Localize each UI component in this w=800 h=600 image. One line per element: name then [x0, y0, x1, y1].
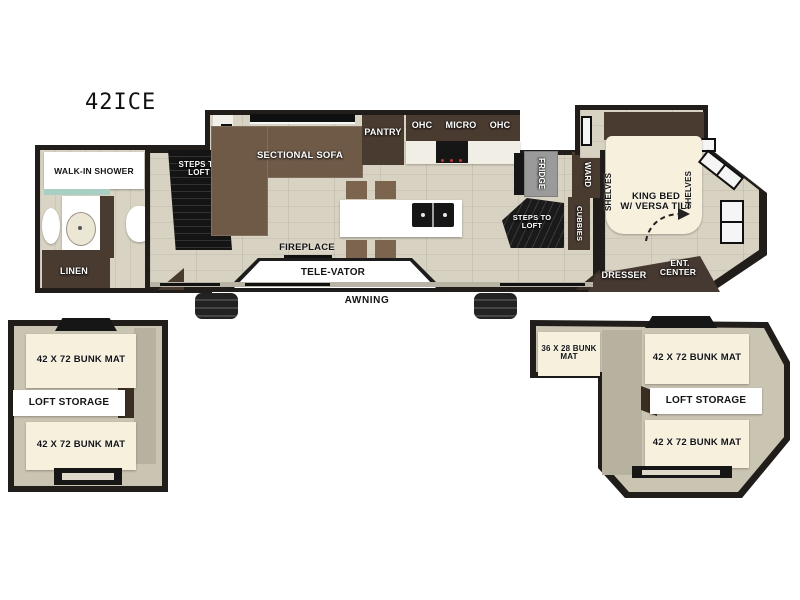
- loft-left-shading: [134, 328, 156, 464]
- loft-right-bunk-small-label: 36 X 28 BUNK MAT: [540, 343, 598, 363]
- bed-slide-window-icon: [581, 116, 592, 146]
- entry-arrow-icon: [638, 203, 692, 245]
- ohc-left-label: OHC: [408, 121, 436, 131]
- island-chair: [346, 181, 367, 199]
- televator-label: TELE-VATOR: [258, 266, 408, 280]
- pantry-cabinet: [362, 115, 404, 165]
- fridge-side-panel: [514, 153, 524, 195]
- window-pane: [702, 140, 714, 150]
- floorplan-page: 42ICE WALK-IN SHOWER WASHER DRYER PREP L…: [0, 0, 800, 600]
- window-pane: [722, 202, 742, 221]
- dresser-label: DRESSER: [594, 270, 654, 281]
- pantry-label: PANTRY: [360, 127, 406, 139]
- loft-right-bunk-bottom-label: 42 X 72 BUNK MAT: [646, 438, 748, 449]
- sink-divider: [432, 203, 434, 227]
- window-pane: [583, 118, 590, 144]
- sofa-top-window-icon: [250, 114, 355, 124]
- loft-right-hatch-inner: [642, 470, 720, 475]
- sink-drain-icon: [421, 213, 425, 217]
- ward-label: WARD: [580, 155, 594, 195]
- rail-slot: [245, 283, 330, 286]
- bath-divider-cabinet: [100, 196, 114, 258]
- sectional-sofa-label: SECTIONAL SOFA: [235, 150, 365, 162]
- plan-title: 42ICE: [85, 90, 156, 115]
- sink-drain-icon: [443, 213, 447, 217]
- rail-slot: [160, 283, 220, 286]
- island-chair: [375, 181, 396, 199]
- fireplace-label: FIREPLACE: [252, 242, 362, 254]
- loft-left-stair-opening: [55, 318, 117, 331]
- loft-left-storage-label: LOFT STORAGE: [17, 397, 121, 409]
- burner-dot-icon: [459, 159, 462, 162]
- ohc-right-label: OHC: [486, 121, 514, 131]
- ent-center-label-line2: CENTER: [650, 268, 706, 277]
- loft-right-corridor: [602, 330, 642, 475]
- loft-left-bunk-bottom-label: 42 X 72 BUNK MAT: [28, 440, 134, 451]
- loft-right-stair-opening: [645, 316, 717, 328]
- walk-in-shower-label: WALK-IN SHOWER: [52, 158, 136, 184]
- shower-glass: [44, 189, 110, 195]
- awning-label: AWNING: [330, 295, 404, 308]
- rail-slot: [500, 283, 585, 286]
- window-pane: [722, 223, 742, 242]
- nose-window-lower-icon: [720, 200, 744, 244]
- bath-stool: [42, 208, 60, 244]
- island-chair: [375, 240, 396, 260]
- burner-dot-icon: [441, 159, 444, 162]
- loft-right-bunk-top-label: 42 X 72 BUNK MAT: [646, 353, 748, 364]
- cubbies-label: CUBBIES: [572, 199, 586, 249]
- bathroom-sink-drain-icon: [78, 226, 82, 230]
- fridge-label: FRIDGE: [534, 153, 548, 195]
- sectional-sofa-side: [211, 126, 268, 236]
- wheel-right-icon: [474, 293, 517, 319]
- loft-right-storage-label: LOFT STORAGE: [654, 395, 758, 407]
- linen-label: LINEN: [46, 266, 102, 278]
- wheel-left-icon: [195, 293, 238, 319]
- loft-left-hatch-inner: [62, 473, 114, 480]
- loft-left-bunk-top-label: 42 X 72 BUNK MAT: [28, 355, 134, 366]
- steps-to-loft-rear-label: STEPS TO LOFT: [506, 212, 558, 232]
- micro-label: MICRO: [440, 121, 482, 131]
- burner-dot-icon: [450, 159, 453, 162]
